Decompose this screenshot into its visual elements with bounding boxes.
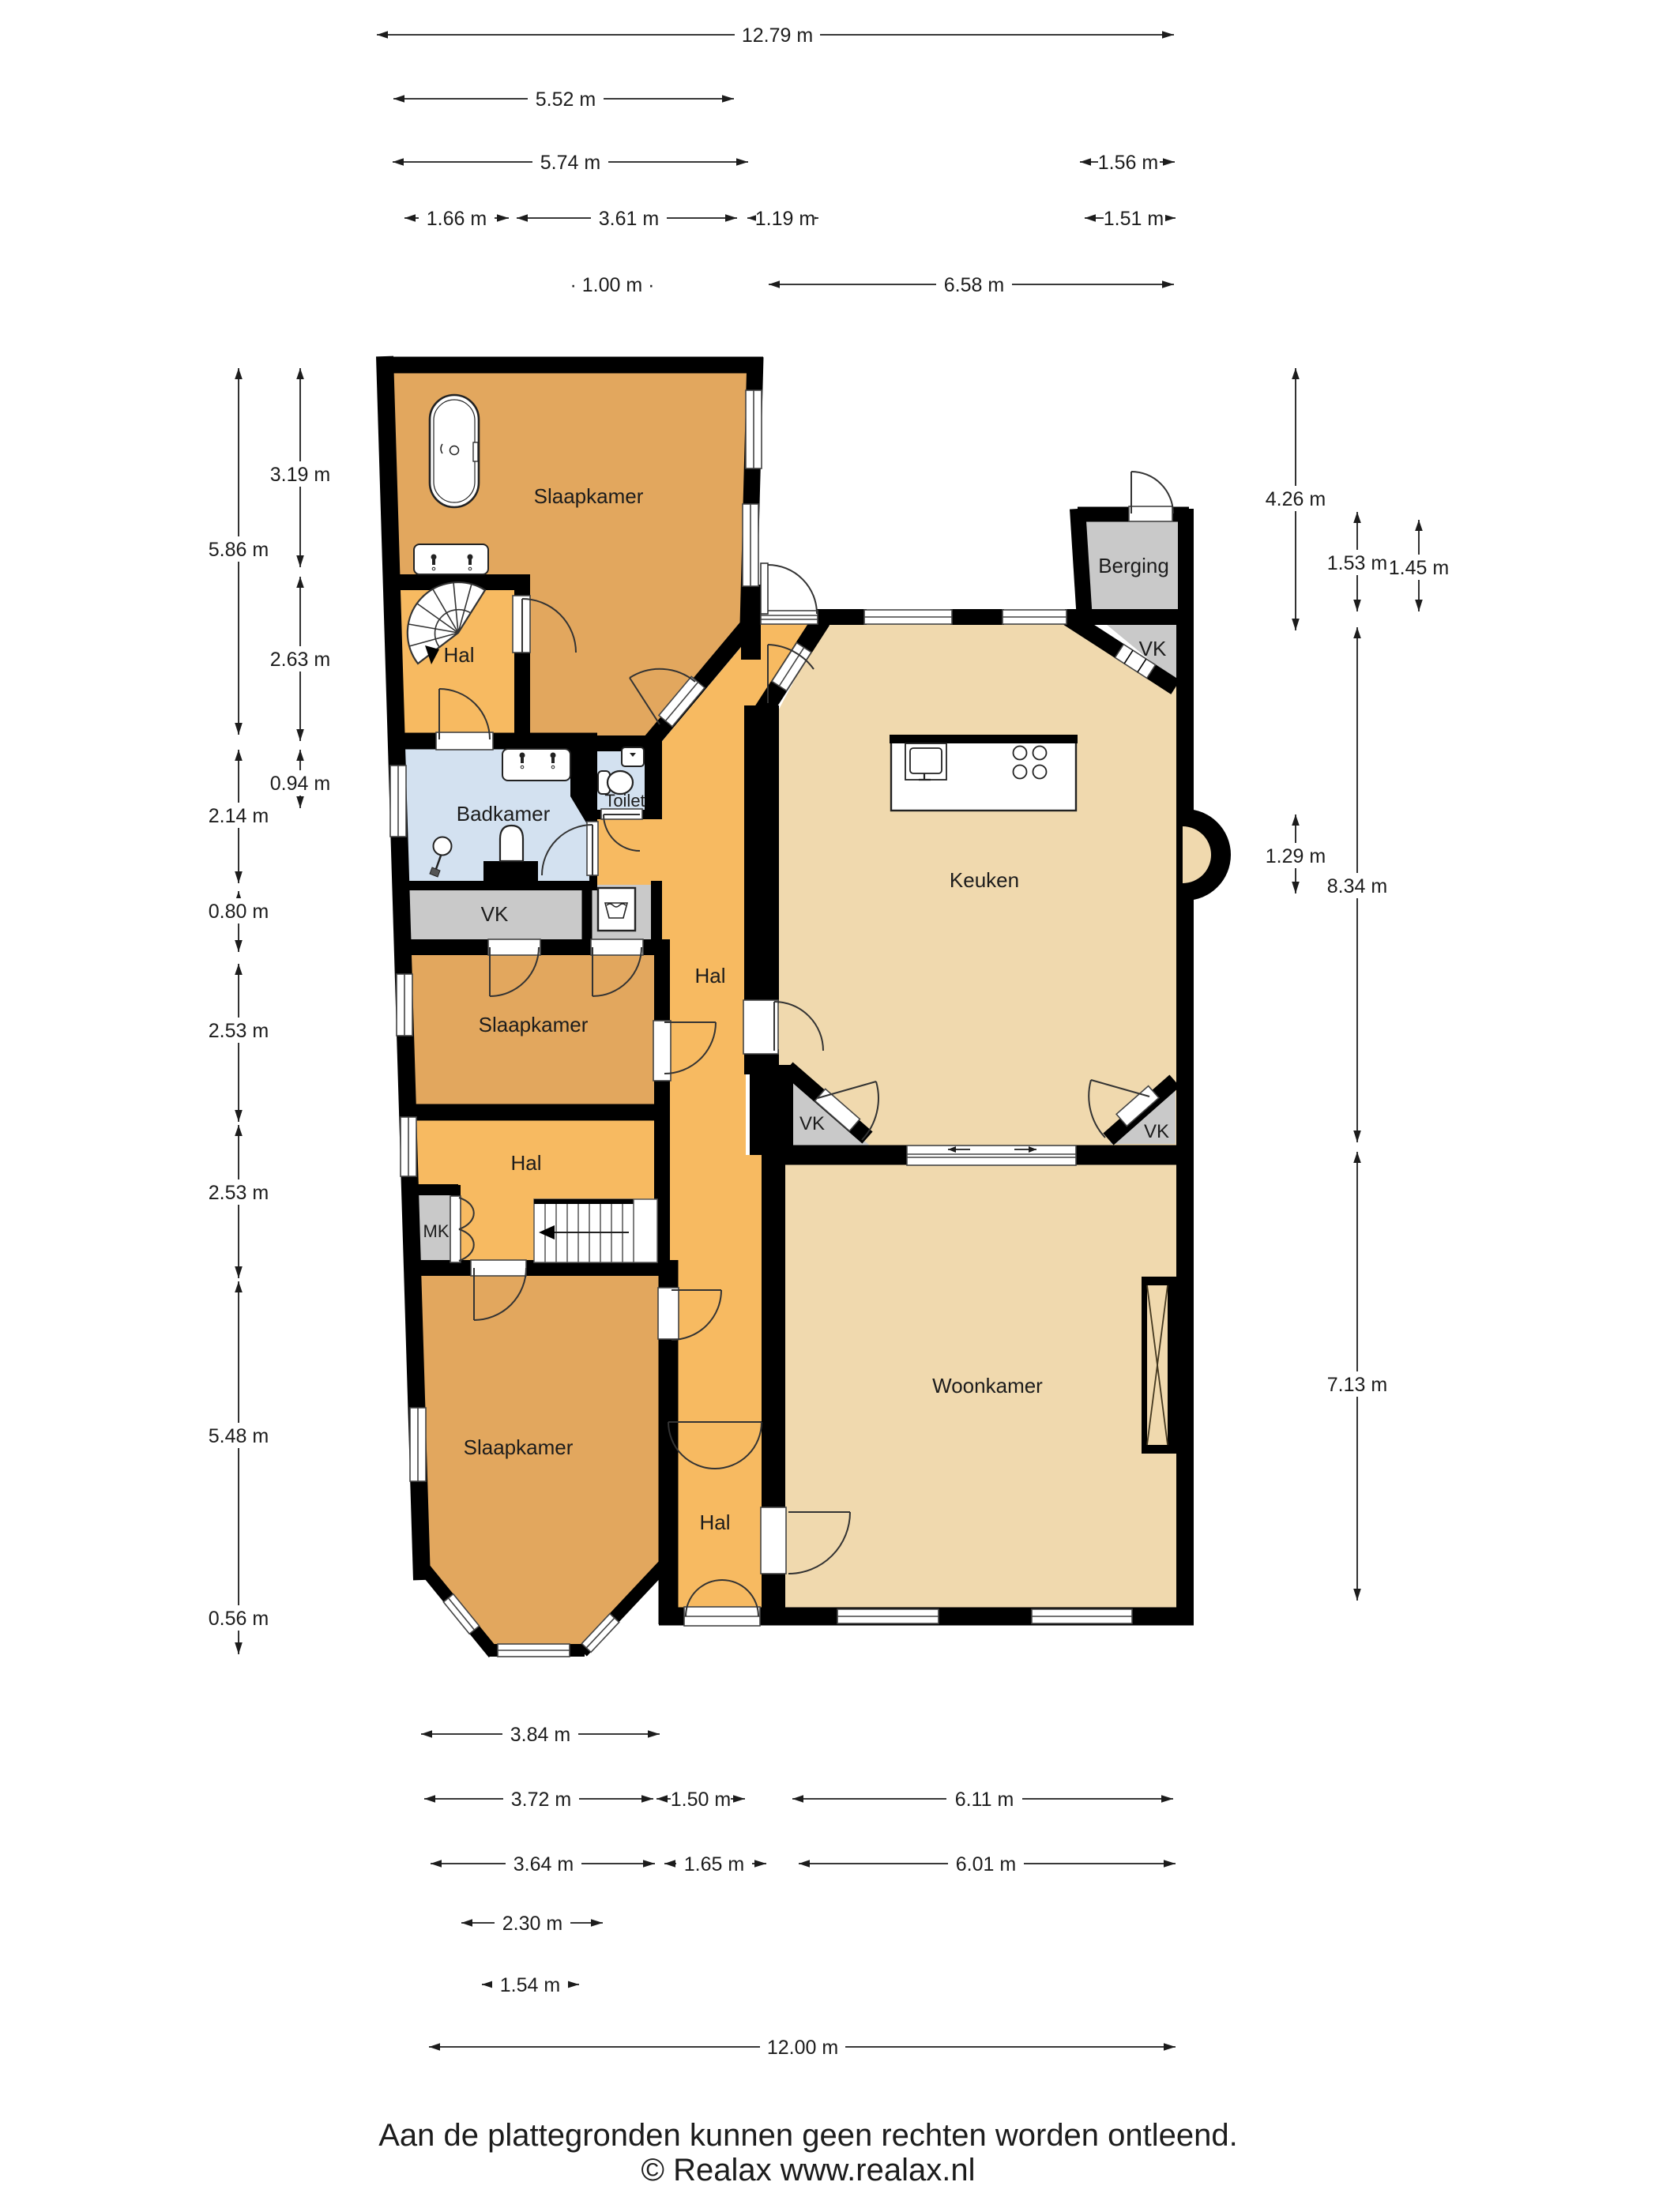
svg-text:Hal: Hal bbox=[443, 643, 474, 667]
svg-text:Hal: Hal bbox=[694, 964, 725, 987]
svg-text:Toilet: Toilet bbox=[604, 791, 645, 811]
svg-text:3.61 m: 3.61 m bbox=[599, 208, 659, 230]
svg-text:5.48 m: 5.48 m bbox=[209, 1425, 269, 1447]
svg-text:3.72 m: 3.72 m bbox=[511, 1789, 571, 1811]
svg-text:Slaapkamer: Slaapkamer bbox=[479, 1013, 589, 1036]
svg-text:Slaapkamer: Slaapkamer bbox=[464, 1435, 574, 1459]
svg-text:6.58 m: 6.58 m bbox=[944, 274, 1004, 296]
svg-text:12.00 m: 12.00 m bbox=[767, 2037, 838, 2059]
svg-text:1.66 m: 1.66 m bbox=[427, 208, 487, 230]
svg-text:Aan de plattegronden kunnen ge: Aan de plattegronden kunnen geen rechten… bbox=[378, 2118, 1238, 2153]
svg-text:7.13 m: 7.13 m bbox=[1327, 1374, 1387, 1396]
svg-text:Keuken: Keuken bbox=[950, 868, 1019, 892]
svg-text:· 1.00 m ·: · 1.00 m · bbox=[570, 274, 655, 296]
svg-text:4.26 m: 4.26 m bbox=[1266, 488, 1326, 510]
svg-text:3.64 m: 3.64 m bbox=[513, 1853, 574, 1875]
svg-text:1.56 m: 1.56 m bbox=[1098, 152, 1158, 174]
svg-text:MK: MK bbox=[423, 1221, 450, 1241]
svg-text:1.19 m: 1.19 m bbox=[755, 208, 815, 230]
svg-text:5.86 m: 5.86 m bbox=[209, 539, 269, 561]
svg-text:2.14 m: 2.14 m bbox=[209, 805, 269, 827]
svg-text:0.56 m: 0.56 m bbox=[209, 1608, 269, 1630]
svg-text:2.63 m: 2.63 m bbox=[270, 649, 330, 671]
svg-text:12.79 m: 12.79 m bbox=[742, 24, 813, 47]
svg-text:© Realax www.realax.nl: © Realax www.realax.nl bbox=[641, 2153, 976, 2188]
svg-text:1.53 m: 1.53 m bbox=[1327, 552, 1387, 574]
svg-text:8.34 m: 8.34 m bbox=[1327, 875, 1387, 897]
svg-text:1.45 m: 1.45 m bbox=[1389, 557, 1449, 579]
svg-text:1.29 m: 1.29 m bbox=[1266, 845, 1326, 867]
svg-text:5.74 m: 5.74 m bbox=[540, 152, 600, 174]
svg-text:Hal: Hal bbox=[699, 1510, 730, 1534]
svg-text:Slaapkamer: Slaapkamer bbox=[534, 484, 644, 508]
svg-text:1.50 m: 1.50 m bbox=[671, 1789, 731, 1811]
svg-text:2.30 m: 2.30 m bbox=[502, 1913, 562, 1935]
svg-text:Hal: Hal bbox=[510, 1151, 541, 1175]
svg-text:5.52 m: 5.52 m bbox=[536, 88, 596, 111]
svg-text:1.51 m: 1.51 m bbox=[1104, 208, 1164, 230]
svg-text:VK: VK bbox=[1139, 637, 1167, 660]
svg-text:1.65 m: 1.65 m bbox=[684, 1853, 744, 1875]
svg-text:3.84 m: 3.84 m bbox=[510, 1724, 570, 1746]
svg-text:2.53 m: 2.53 m bbox=[209, 1182, 269, 1204]
svg-text:VK: VK bbox=[481, 902, 509, 926]
svg-text:Berging: Berging bbox=[1098, 554, 1169, 577]
svg-text:0.94 m: 0.94 m bbox=[270, 773, 330, 795]
svg-text:2.53 m: 2.53 m bbox=[209, 1020, 269, 1042]
svg-text:6.01 m: 6.01 m bbox=[956, 1853, 1016, 1875]
svg-text:3.19 m: 3.19 m bbox=[270, 464, 330, 486]
svg-text:0.80 m: 0.80 m bbox=[209, 901, 269, 923]
svg-text:6.11 m: 6.11 m bbox=[955, 1789, 1014, 1811]
svg-text:Woonkamer: Woonkamer bbox=[932, 1374, 1043, 1398]
svg-text:1.54 m: 1.54 m bbox=[500, 1974, 560, 1996]
svg-text:VK: VK bbox=[1144, 1121, 1169, 1142]
svg-text:Badkamer: Badkamer bbox=[457, 802, 551, 826]
svg-text:VK: VK bbox=[799, 1113, 825, 1134]
